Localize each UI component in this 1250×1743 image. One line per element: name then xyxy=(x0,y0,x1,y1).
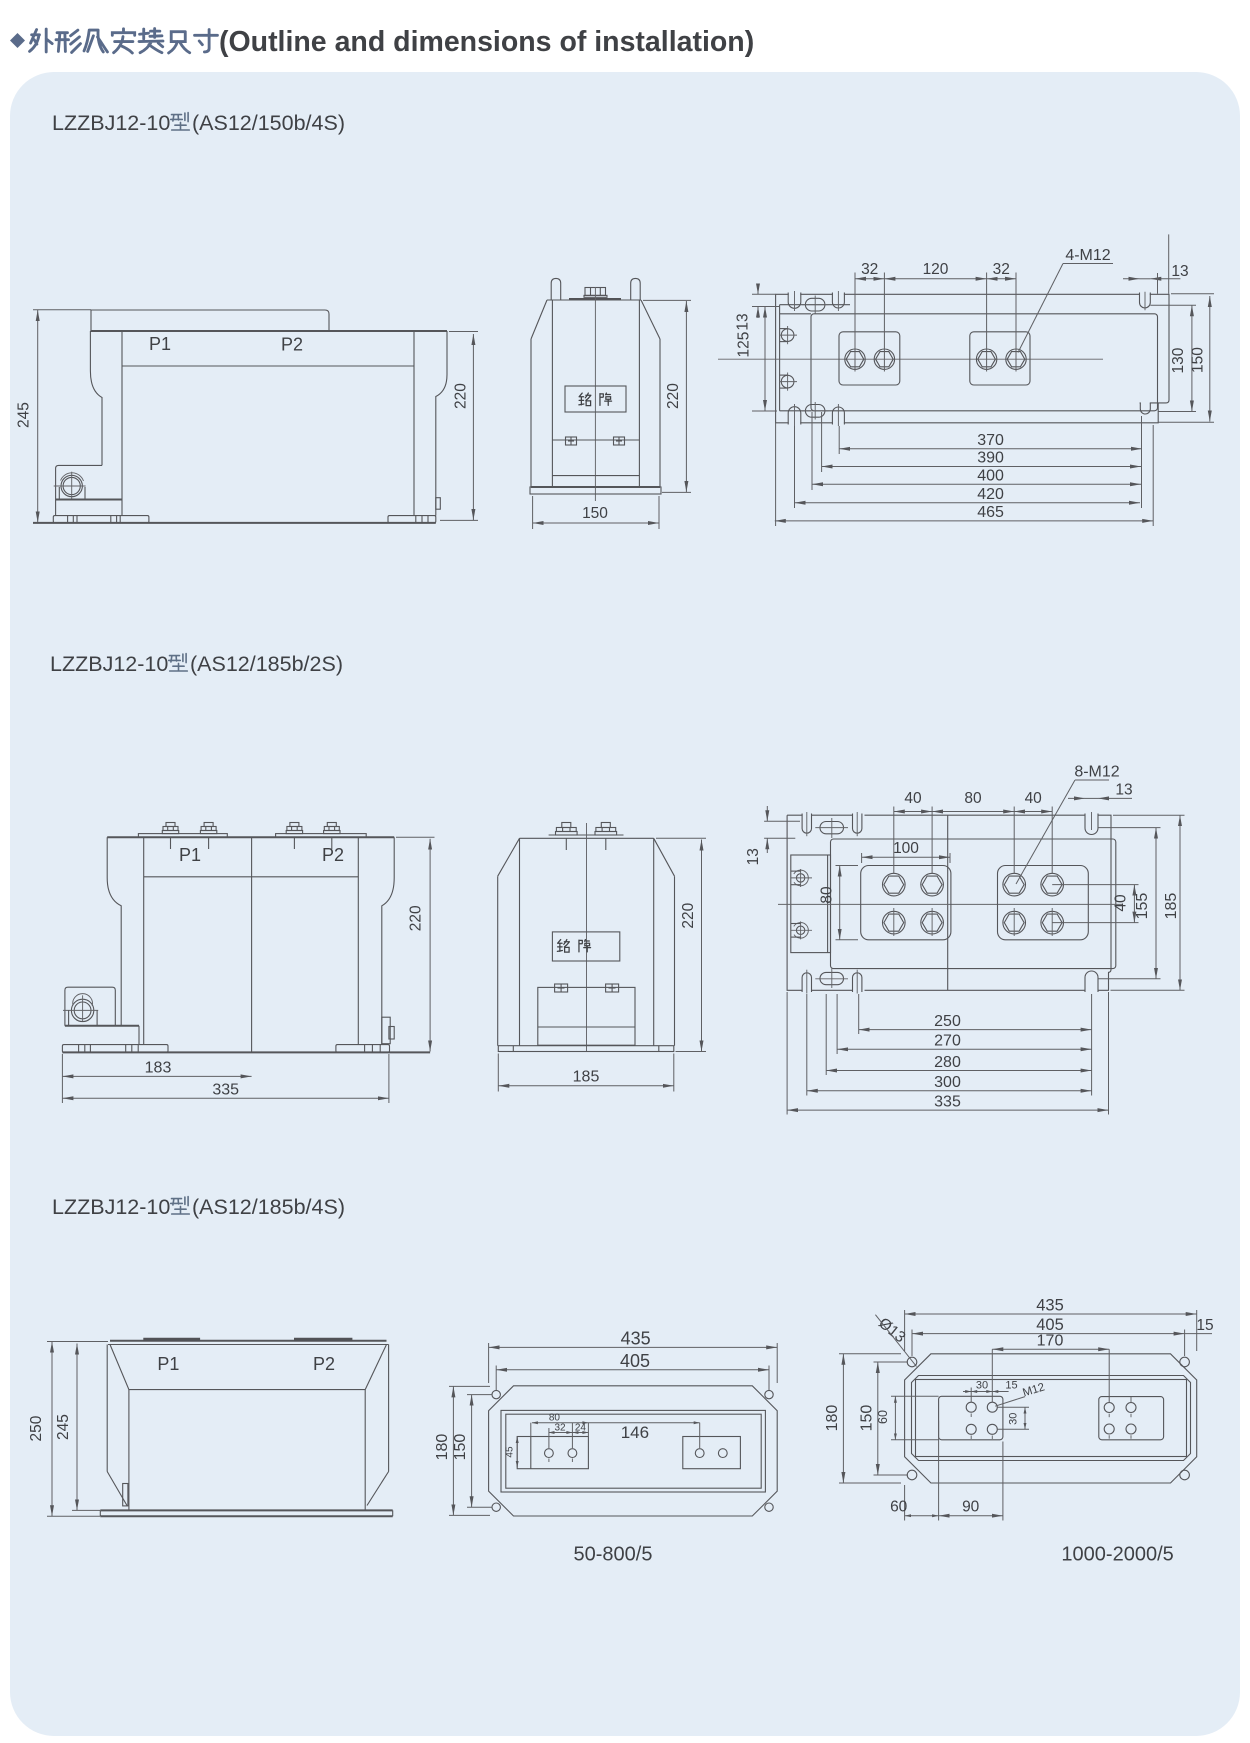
svg-text:220: 220 xyxy=(453,383,470,409)
svg-text:390: 390 xyxy=(977,450,1004,467)
svg-text:220: 220 xyxy=(408,905,425,931)
svg-text:180: 180 xyxy=(824,1405,841,1432)
svg-text:120: 120 xyxy=(923,261,949,278)
svg-text:13: 13 xyxy=(735,313,752,330)
svg-text:30: 30 xyxy=(1007,1413,1019,1425)
svg-text:P1: P1 xyxy=(157,1354,179,1374)
svg-text:150: 150 xyxy=(859,1405,876,1432)
svg-text:24: 24 xyxy=(575,1423,587,1434)
svg-text:LZZBJ12-10: LZZBJ12-10 xyxy=(50,652,168,676)
svg-text:220: 220 xyxy=(665,383,682,409)
svg-text:(AS12/150b/4S): (AS12/150b/4S) xyxy=(192,111,345,135)
svg-text:40: 40 xyxy=(1025,790,1043,807)
svg-text:(AS12/185b/4S): (AS12/185b/4S) xyxy=(192,1195,345,1219)
svg-text:32: 32 xyxy=(554,1423,566,1434)
svg-text:90: 90 xyxy=(962,1499,980,1516)
svg-text:125: 125 xyxy=(736,332,753,358)
svg-text:335: 335 xyxy=(212,1082,239,1099)
svg-text:420: 420 xyxy=(977,486,1004,503)
svg-text:4-M12: 4-M12 xyxy=(1065,247,1110,264)
svg-text:335: 335 xyxy=(934,1094,961,1111)
svg-text:245: 245 xyxy=(16,402,33,428)
svg-text:P2: P2 xyxy=(281,335,303,355)
svg-text:185: 185 xyxy=(1163,893,1180,920)
svg-text:(Outline and dimensions of ins: (Outline and dimensions of installation) xyxy=(219,26,754,58)
svg-text:1000-2000/5: 1000-2000/5 xyxy=(1061,1544,1173,1566)
svg-text:80: 80 xyxy=(964,790,982,807)
svg-text:150: 150 xyxy=(1189,347,1206,373)
svg-text:P1: P1 xyxy=(179,845,201,865)
svg-text:146: 146 xyxy=(621,1423,649,1442)
svg-text:405: 405 xyxy=(620,1351,650,1371)
svg-text:300: 300 xyxy=(934,1074,961,1091)
svg-text:80: 80 xyxy=(819,886,836,904)
svg-text:155: 155 xyxy=(1134,893,1151,920)
svg-text:P1: P1 xyxy=(149,334,171,354)
svg-text:P2: P2 xyxy=(313,1354,335,1374)
svg-text:270: 270 xyxy=(934,1033,961,1050)
svg-text:130: 130 xyxy=(1170,347,1187,373)
svg-text:465: 465 xyxy=(977,504,1004,521)
svg-text:100: 100 xyxy=(893,840,919,857)
svg-text:8-M12: 8-M12 xyxy=(1074,764,1119,781)
svg-text:245: 245 xyxy=(55,1414,72,1440)
svg-text:30: 30 xyxy=(976,1380,988,1392)
svg-text:370: 370 xyxy=(977,432,1004,449)
svg-text:LZZBJ12-10: LZZBJ12-10 xyxy=(52,1195,170,1219)
svg-text:32: 32 xyxy=(861,261,878,278)
svg-text:15: 15 xyxy=(1196,1317,1213,1334)
svg-text:435: 435 xyxy=(1036,1297,1064,1315)
svg-text:LZZBJ12-10: LZZBJ12-10 xyxy=(52,111,170,135)
svg-text:45: 45 xyxy=(505,1446,516,1458)
svg-text:13: 13 xyxy=(1171,263,1188,280)
svg-text:150: 150 xyxy=(582,505,608,522)
svg-text:220: 220 xyxy=(680,902,697,928)
svg-text:180: 180 xyxy=(434,1434,451,1461)
svg-text:170: 170 xyxy=(1037,1333,1064,1350)
svg-text:250: 250 xyxy=(934,1013,961,1030)
svg-text:40: 40 xyxy=(1113,894,1130,912)
svg-text:13: 13 xyxy=(745,848,762,865)
svg-text:15: 15 xyxy=(1005,1380,1017,1392)
svg-text:32: 32 xyxy=(993,261,1010,278)
svg-text:P2: P2 xyxy=(322,845,344,865)
svg-text:250: 250 xyxy=(28,1415,45,1441)
svg-text:405: 405 xyxy=(1036,1316,1064,1334)
svg-text:185: 185 xyxy=(573,1068,600,1085)
svg-text:40: 40 xyxy=(904,790,922,807)
svg-text:400: 400 xyxy=(977,468,1004,485)
svg-text:(AS12/185b/2S): (AS12/185b/2S) xyxy=(190,652,343,676)
svg-text:50-800/5: 50-800/5 xyxy=(574,1544,653,1566)
svg-text:150: 150 xyxy=(452,1434,469,1461)
svg-text:13: 13 xyxy=(1115,782,1132,799)
svg-text:60: 60 xyxy=(890,1499,908,1516)
svg-text:435: 435 xyxy=(621,1328,651,1348)
svg-text:280: 280 xyxy=(934,1054,961,1071)
svg-text:183: 183 xyxy=(145,1060,172,1077)
